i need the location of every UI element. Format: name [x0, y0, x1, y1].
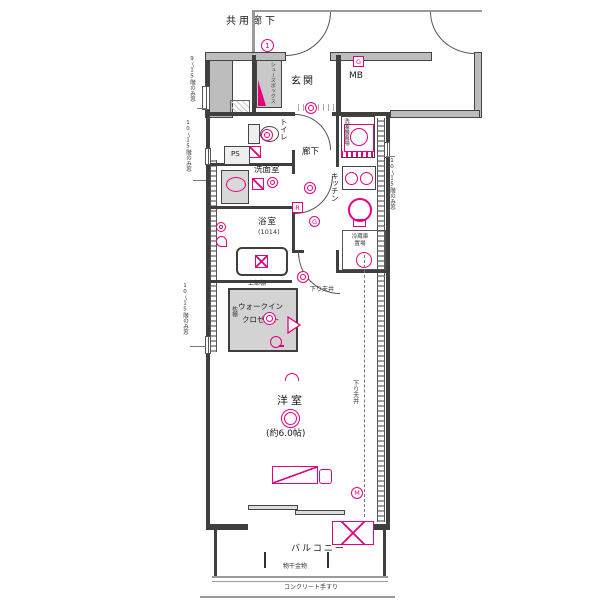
- laundry-hardware-label: 物干金物: [283, 564, 307, 571]
- handrail-line: [212, 581, 388, 582]
- leader: [193, 180, 206, 181]
- wall: [206, 112, 295, 116]
- wall-right-insulated: [377, 118, 385, 522]
- handrail-label: コンクリート手すり: [284, 585, 338, 592]
- ground-line: [200, 596, 395, 598]
- entrance-label: 玄関: [291, 76, 315, 87]
- wall-hall-left: [292, 150, 295, 174]
- wall-genkan-mb: [336, 55, 341, 113]
- marker-remote-label: R: [295, 204, 300, 212]
- wall: [330, 52, 432, 61]
- wall-bottom: [206, 524, 248, 530]
- wall-bath-top: [210, 206, 292, 209]
- toilet-tank: [248, 124, 260, 144]
- stool-icon: [319, 469, 332, 484]
- vent-icon: [249, 146, 261, 158]
- wic-shelf-label: 上部棚: [248, 281, 266, 288]
- shower-icon: [216, 236, 227, 247]
- ac-outdoor-unit-icon: [332, 521, 374, 545]
- marker-gas-round: G: [309, 216, 320, 227]
- burner-icon: [360, 172, 373, 185]
- wall-left-insulated: [210, 160, 217, 352]
- entrance-door-arc: [286, 12, 331, 56]
- wic-label-1: ウォークイン: [238, 303, 283, 311]
- balcony-wall-left: [214, 530, 217, 577]
- pull-light-cord: [279, 345, 284, 347]
- light-icon: [216, 222, 226, 232]
- window: [205, 336, 211, 354]
- washer-label: 洗濯機置場: [343, 118, 349, 146]
- marker-remote: R: [292, 202, 303, 213]
- counter-icon: [272, 466, 318, 484]
- mb-label: MB: [349, 72, 363, 82]
- window: [202, 86, 210, 110]
- bathroom-size: (1014): [258, 229, 280, 236]
- mb-door-arc: [430, 12, 475, 54]
- marker-gas-label: G: [356, 58, 361, 66]
- annotation-right: 10〜15階のみ窓: [389, 158, 395, 210]
- lowered-ceiling-label: 下り天井: [310, 287, 334, 294]
- handrail-line: [212, 576, 388, 578]
- laundry-pole-icon: [264, 552, 266, 568]
- fridge-label: 冷蔵庫置場: [350, 234, 370, 248]
- stove-unit: [342, 166, 376, 190]
- jamb: [252, 10, 255, 55]
- washer-drum-icon: [350, 128, 368, 146]
- leader: [190, 346, 206, 347]
- bedroom-label: 洋室: [277, 395, 305, 407]
- sliding-window: [248, 505, 298, 510]
- wall: [474, 52, 482, 118]
- marker-meter: M: [351, 487, 363, 499]
- wall-kitchen-left: [336, 112, 339, 167]
- annotation-left-mid: 10〜15階のみ窓: [185, 120, 191, 172]
- wall-hall-left: [292, 208, 295, 252]
- marker-gas-box: G: [353, 56, 364, 67]
- balcony-label: バルコニー: [291, 545, 346, 555]
- light-icon: [263, 312, 276, 325]
- floor-plan: 共用廊下 1 シューズボックス 玄関 G MB トイレ: [0, 0, 600, 600]
- bath-vent-icon: [255, 255, 268, 268]
- light-icon: [297, 271, 309, 283]
- wic-door-icon: [287, 316, 301, 334]
- light-icon: [305, 102, 317, 114]
- kitchen-label: キッチン: [330, 172, 338, 202]
- balcony-wall-right: [383, 530, 386, 577]
- marker-1: 1: [261, 39, 274, 52]
- sensor-icon: [285, 373, 299, 381]
- vanity-bowl: [226, 177, 246, 192]
- burner-icon: [345, 172, 358, 185]
- toilet-label: トイレ: [279, 118, 287, 141]
- light-icon: [267, 177, 278, 188]
- bathroom-label: 浴室: [258, 218, 277, 227]
- shoe-box-label: シューズボックス: [269, 62, 275, 107]
- water-heater-base: [353, 219, 366, 227]
- marker-meter-label: M: [354, 489, 360, 497]
- light-icon: [304, 182, 316, 194]
- waterproof-pan: [341, 151, 375, 157]
- wall: [390, 110, 480, 118]
- marker-gas-round-label: G: [312, 218, 317, 226]
- washroom-label: 洗面室: [254, 166, 280, 175]
- light-icon: [261, 129, 273, 141]
- leader: [386, 156, 395, 157]
- laundry-pole-icon: [327, 552, 329, 568]
- leader: [197, 108, 206, 109]
- bedroom-size: (約6.0帖): [266, 430, 305, 440]
- lowered-ceiling-line: [364, 255, 365, 517]
- annotation-left-top: 9〜15階のみ窓: [189, 56, 195, 102]
- wic-side-shelf-label: 枕棚: [231, 306, 237, 317]
- wall-kitchen-bottom: [336, 270, 390, 273]
- entrance-tile: [298, 104, 336, 111]
- light-icon: [281, 409, 300, 428]
- annotation-left-low: 10〜15階のみ窓: [182, 283, 188, 335]
- vent-icon: [252, 178, 264, 190]
- sliding-window: [295, 510, 345, 515]
- ps-label: PS: [231, 151, 240, 159]
- lowered-ceiling-label-v: 下り天井: [351, 380, 358, 404]
- door-arc: [295, 114, 331, 150]
- marker-1-label: 1: [265, 42, 269, 50]
